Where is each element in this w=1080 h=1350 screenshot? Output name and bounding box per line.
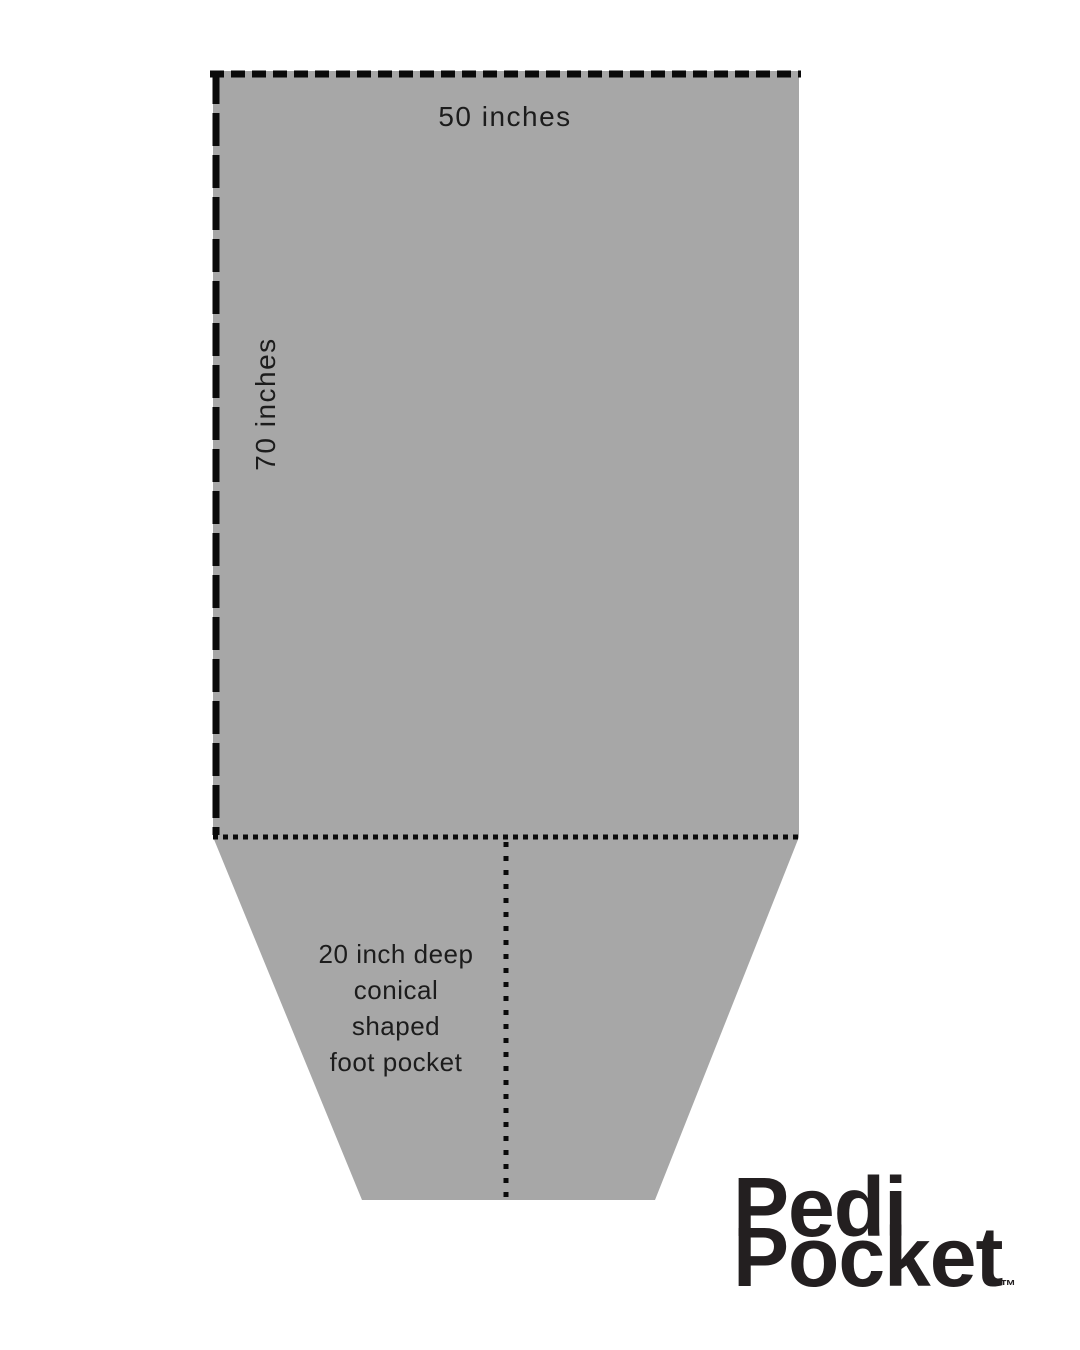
pocket-description-line: shaped: [296, 1008, 496, 1044]
diagram-canvas: [0, 0, 1080, 1350]
pocket-description-line: 20 inch deep: [296, 936, 496, 972]
height-label: 70 inches: [250, 304, 278, 504]
pocket-description: 20 inch deep conical shaped foot pocket: [296, 936, 496, 1080]
pocket-description-line: conical: [296, 972, 496, 1008]
width-label: 50 inches: [405, 101, 605, 133]
trademark-symbol: ™: [1000, 1278, 1016, 1296]
logo-word-pocket: Pocket: [733, 1215, 1002, 1299]
pocket-description-line: foot pocket: [296, 1044, 496, 1080]
